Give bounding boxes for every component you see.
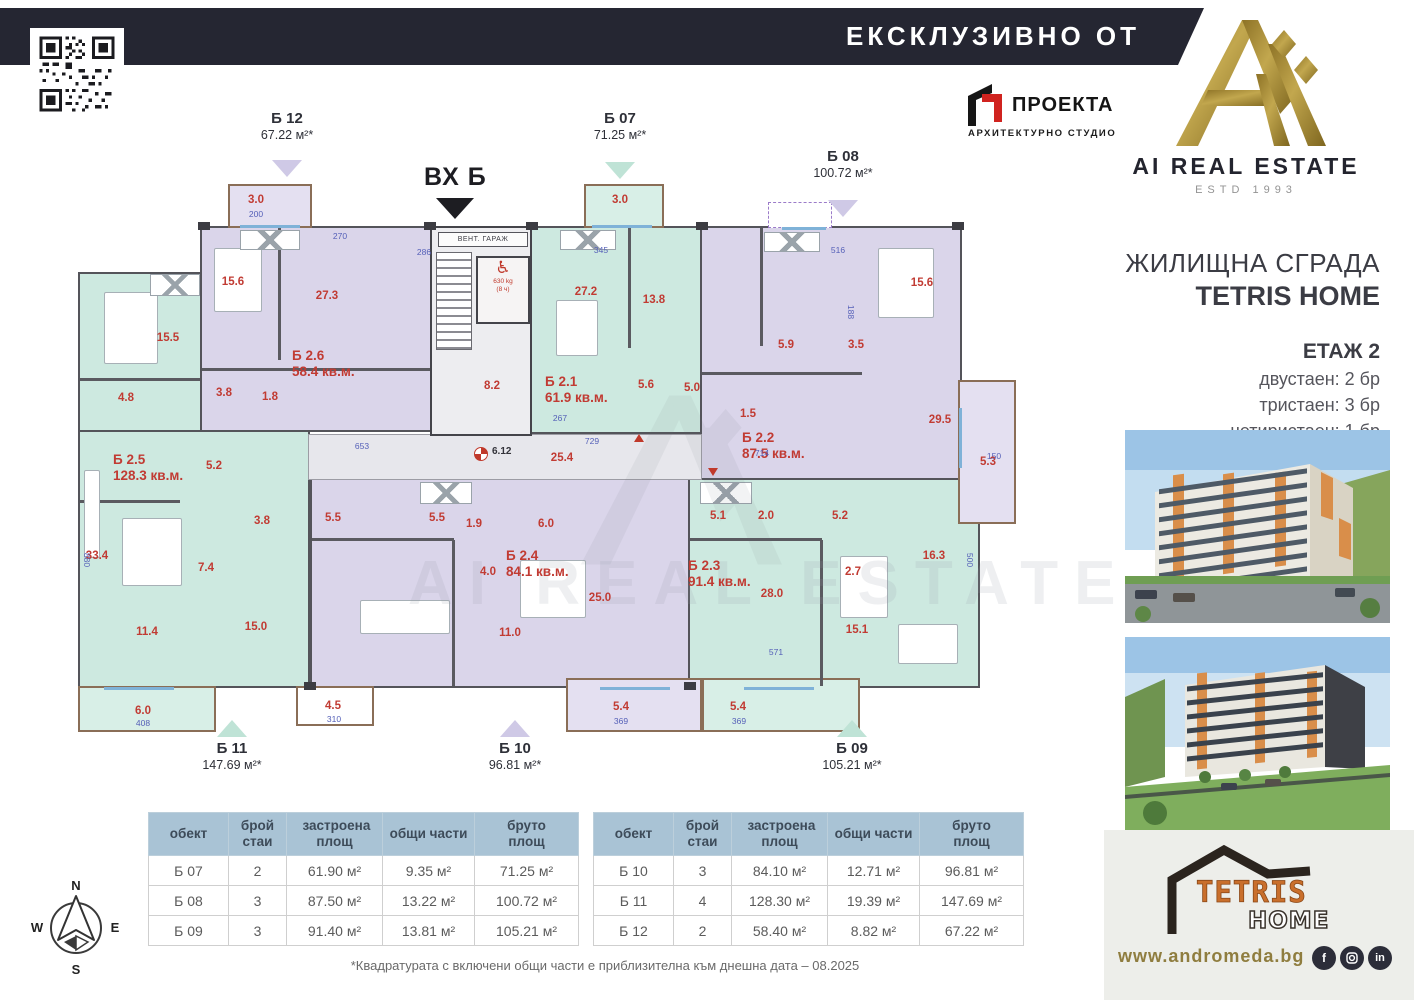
dimension: 369	[614, 716, 628, 726]
room-area: 4.0	[480, 566, 496, 578]
room-area: 5.2	[206, 460, 222, 472]
room-area: 27.3	[316, 290, 338, 302]
table-row: Б 072 61.90 м²9.35 м² 71.25 м²	[149, 856, 579, 886]
col-header: общи части	[383, 813, 475, 856]
marker-b11	[217, 720, 247, 737]
callout-b07: Б 0771.25 м²*	[555, 110, 685, 142]
lobby-area: 8.2	[484, 380, 500, 392]
marker-b10	[500, 720, 530, 737]
balcony-area: 4.5	[325, 700, 341, 712]
unit-mix-item: тристаен: 3 бр	[1100, 395, 1380, 416]
architect-logo: ПРОЕКТА АРХИТЕКТУРНО СТУДИО	[968, 82, 1128, 139]
apartment-label: Б 2.161.9 кв.м.	[545, 374, 608, 406]
balcony-area: 6.0	[135, 705, 151, 717]
project-info: ЖИЛИЩНА СГРАДА TETRIS HOME ЕТАЖ 2 двуста…	[1100, 248, 1380, 442]
compass-w: W	[31, 920, 44, 935]
elevator: ♿ 630 kg (8 ч)	[476, 256, 530, 324]
area-table-right: обект брой стаи застроена площ общи част…	[593, 812, 1024, 946]
svg-text:TETRIS: TETRIS	[1196, 875, 1307, 909]
room-area: 15.0	[245, 621, 267, 633]
callout-b10: Б 1096.81 м²*	[450, 740, 580, 772]
balcony-b22-top	[768, 202, 832, 228]
compass-rose: N E S W	[28, 878, 124, 983]
area-table-left: обект брой стаи застроена площ общи част…	[148, 812, 579, 946]
room-area: 5.5	[429, 512, 445, 524]
apartment-label: Б 2.658.4 кв.м.	[292, 348, 355, 380]
room-area: 28.0	[761, 588, 783, 600]
architect-subtitle: АРХИТЕКТУРНО СТУДИО	[968, 128, 1128, 139]
qr-code	[30, 28, 124, 120]
dimension: 516	[831, 245, 845, 255]
dimension: 714	[755, 448, 769, 458]
project-name: TETRIS HOME	[1100, 281, 1380, 312]
dimension: 729	[585, 436, 599, 446]
room-area: 5.1	[710, 510, 726, 522]
facebook-icon[interactable]: f	[1312, 946, 1336, 970]
callout-b12: Б 1267.22 м²*	[222, 110, 352, 142]
table-row: Б 093 91.40 м²13.81 м² 105.21 м²	[149, 916, 579, 946]
website-link[interactable]: www.andromeda.bg	[1118, 946, 1308, 967]
dimension: 150	[987, 451, 1001, 461]
col-header: застроена площ	[287, 813, 383, 856]
dimension: 653	[355, 441, 369, 451]
architect-name: ПРОЕКТА	[1012, 94, 1113, 117]
balcony-b26	[228, 184, 312, 228]
svg-text:HOME: HOME	[1248, 908, 1329, 934]
dimension: 188	[846, 305, 856, 319]
apartment-label: Б 2.391.4 кв.м.	[688, 558, 751, 590]
table-row: Б 122 58.40 м²8.82 м² 67.22 м²	[594, 916, 1024, 946]
table-row: Б 114 128.30 м²19.39 м² 147.69 м²	[594, 886, 1024, 916]
wheelchair-icon: ♿	[478, 258, 528, 278]
exclusive-banner: ЕКСКЛУЗИВНО ОТ	[0, 8, 1204, 65]
architect-house-icon	[968, 82, 1006, 126]
room-area: 5.0	[684, 382, 700, 394]
exclusive-label: ЕКСКЛУЗИВНО ОТ	[846, 21, 1140, 52]
dimension: 571	[769, 647, 783, 657]
ai-real-estate-logo-icon	[1168, 16, 1332, 150]
tetris-home-logo: TETRIS HOME	[1160, 842, 1350, 934]
marker-b12	[272, 160, 302, 177]
room-area: 16.3	[923, 550, 945, 562]
room-area: 2.0	[758, 510, 774, 522]
entrance-arrow-icon	[436, 198, 474, 219]
apartment-label: Б 2.5128.3 кв.м.	[113, 452, 183, 484]
room-area: 15.5	[157, 332, 179, 344]
room-area: 1.9	[466, 518, 482, 530]
compass-s: S	[72, 962, 81, 977]
room-area: 7.4	[198, 562, 214, 574]
room-area: 13.8	[643, 294, 665, 306]
apartment-label: Б 2.287.5 кв.м.	[742, 430, 805, 462]
col-header: застроена площ	[732, 813, 828, 856]
vent-garage-label: ВЕНТ. ГАРАЖ	[438, 232, 528, 247]
balcony-b21	[584, 184, 664, 228]
elevator-capacity: 630 kg	[478, 278, 528, 286]
dimension: 200	[249, 209, 263, 219]
room-area: 27.2	[575, 286, 597, 298]
callout-b08: Б 08100.72 м²*	[778, 148, 908, 180]
survey-point-label: 6.12	[492, 446, 511, 457]
balcony-area: 3.0	[248, 194, 264, 206]
room-area: 3.8	[254, 515, 270, 527]
brand-name: AI REAL ESTATE	[1100, 153, 1392, 180]
col-header: бруто площ	[475, 813, 579, 856]
marker-b07	[605, 162, 635, 179]
room-area: 11.0	[499, 627, 521, 639]
building-render-photo-1	[1125, 430, 1390, 623]
room-area: 3.8	[216, 387, 232, 399]
dimension: 286	[417, 247, 431, 257]
apartment-label: Б 2.484.1 кв.м.	[506, 548, 569, 580]
col-header: общи части	[828, 813, 920, 856]
room-area: 15.6	[222, 276, 244, 288]
table-row: Б 083 87.50 м²13.22 м² 100.72 м²	[149, 886, 579, 916]
balcony-area: 3.0	[612, 194, 628, 206]
footer-brand-panel: TETRIS HOME	[1104, 830, 1414, 1000]
dimension: 270	[333, 231, 347, 241]
project-type: ЖИЛИЩНА СГРАДА	[1100, 248, 1380, 279]
floor-label: ЕТАЖ 2	[1100, 340, 1380, 364]
building-render-photo-2	[1125, 637, 1390, 830]
qr-code-icon	[35, 33, 119, 115]
room-area: 5.6	[638, 379, 654, 391]
room-area: 15.6	[911, 277, 933, 289]
col-header: обект	[149, 813, 229, 856]
col-header: брой стаи	[674, 813, 732, 856]
room-area: 11.4	[136, 626, 158, 638]
room-area: 3.5	[848, 339, 864, 351]
dimension: 500	[965, 553, 975, 567]
room-area: 1.5	[740, 408, 756, 420]
room-area: 29.5	[929, 414, 951, 426]
compass-icon: N E S W	[28, 878, 124, 978]
room-area: 1.8	[262, 391, 278, 403]
dimension: 408	[136, 718, 150, 728]
room-area: 15.1	[846, 624, 868, 636]
room-area: 6.0	[538, 518, 554, 530]
marker-b08	[828, 200, 858, 217]
col-header: обект	[594, 813, 674, 856]
room-area: 2.7	[845, 566, 861, 578]
stairs	[436, 252, 472, 350]
dimension: 310	[327, 714, 341, 724]
linkedin-icon[interactable]: in	[1368, 946, 1392, 970]
brand-estd: ESTD 1993	[1100, 184, 1392, 196]
dimension: 267	[553, 413, 567, 423]
balcony-area: 5.4	[730, 701, 746, 713]
unit-mix-item: двустаен: 2 бр	[1100, 369, 1380, 390]
brochure-page: ЕКСКЛУЗИВНО ОТ	[0, 0, 1414, 1000]
dimension: 345	[594, 245, 608, 255]
room-area: 25.0	[589, 592, 611, 604]
room-area: 5.2	[832, 510, 848, 522]
room-area: 4.8	[118, 392, 134, 404]
callout-b11: Б 11147.69 м²*	[167, 740, 297, 772]
col-header: брой стаи	[229, 813, 287, 856]
dimension: 880	[82, 553, 92, 567]
survey-point-icon	[474, 447, 488, 461]
room-area: 5.9	[778, 339, 794, 351]
entrance-label: ВХ Б	[424, 163, 487, 192]
marker-b09	[837, 720, 867, 737]
col-header: бруто площ	[920, 813, 1024, 856]
disclaimer: *Квадратурата с включени общи части е пр…	[280, 958, 930, 973]
instagram-icon[interactable]	[1340, 946, 1364, 970]
callout-b09: Б 09105.21 м²*	[787, 740, 917, 772]
corridor-area: 25.4	[551, 452, 573, 464]
table-row: Б 103 84.10 м²12.71 м² 96.81 м²	[594, 856, 1024, 886]
compass-e: E	[111, 920, 120, 935]
compass-n: N	[71, 878, 80, 893]
dimension: 369	[732, 716, 746, 726]
balcony-area: 5.4	[613, 701, 629, 713]
elevator-persons: (8 ч)	[478, 286, 528, 294]
room-area: 5.5	[325, 512, 341, 524]
